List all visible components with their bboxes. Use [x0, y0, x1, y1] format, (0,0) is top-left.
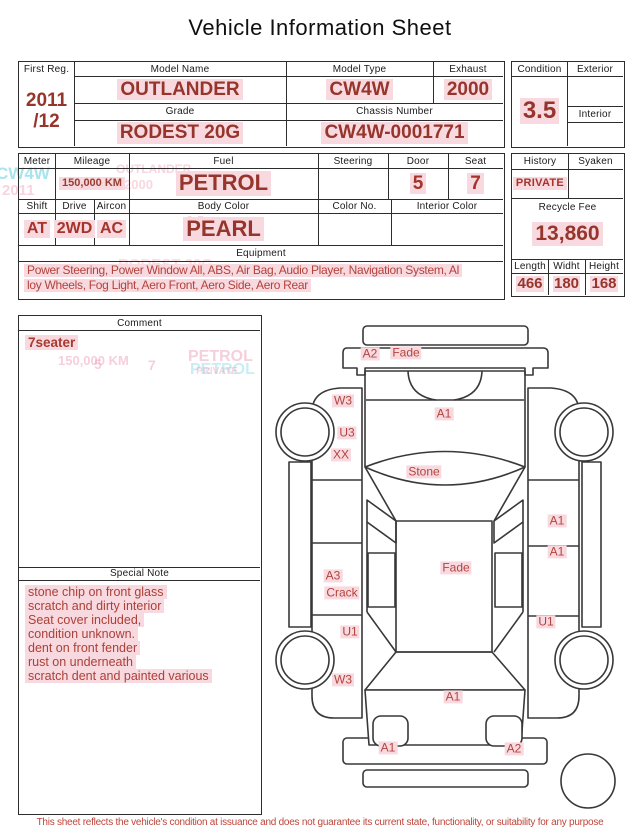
divider-line	[567, 122, 623, 123]
model-type-label: Model Type	[286, 62, 433, 76]
header-table: First Reg. 2011 /12 Model Name OUTLANDER…	[18, 61, 505, 148]
seat-label: Seat	[448, 154, 503, 168]
drive-value: 2WD	[54, 220, 96, 238]
damage-label: A1	[444, 690, 463, 703]
special-note-line: dent on front fender	[25, 641, 140, 655]
special-note-line: stone chip on front glass	[25, 585, 167, 599]
history-value: PRIVATE	[513, 177, 567, 189]
meter-label: Meter	[19, 154, 55, 168]
damage-label: Crack	[324, 586, 359, 599]
special-note-line: scratch and dirty interior	[25, 599, 164, 613]
chassis-value: CW4W-0001771	[321, 122, 467, 143]
mileage-value: 150,000 KM	[59, 177, 125, 189]
damage-label: A1	[548, 545, 567, 558]
car-damage-diagram: A2 Fade W3 A1 U3 XX Stone A1 A1 A3 Crack…	[265, 315, 640, 820]
divider-line	[19, 261, 503, 262]
special-note-line: Seat cover included,	[25, 613, 144, 627]
first-reg-month: /12	[33, 111, 59, 132]
special-note-text: stone chip on front glass scratch and di…	[25, 585, 255, 683]
first-reg-label: First Reg.	[19, 62, 74, 76]
left-rocker-panel	[289, 462, 311, 627]
door-label: Door	[388, 154, 448, 168]
footer-disclaimer: This sheet reflects the vehicle's condit…	[0, 817, 640, 828]
front-left-wheel	[276, 403, 334, 461]
a-pillars	[365, 467, 525, 521]
rear-window	[365, 652, 525, 690]
damage-label: U1	[536, 615, 555, 628]
door-value: 5	[410, 173, 427, 194]
damage-label: Fade	[390, 346, 421, 359]
aircon-label: Aircon	[94, 199, 129, 213]
comment-label: Comment	[19, 316, 260, 330]
damage-label: A2	[361, 347, 380, 360]
damage-label: Fade	[440, 561, 471, 574]
fuel-label: Fuel	[129, 154, 318, 168]
equipment-label: Equipment	[19, 245, 503, 261]
body-color-label: Body Color	[129, 199, 318, 213]
length-value: 466	[516, 276, 543, 293]
damage-label: A1	[548, 514, 567, 527]
divider-line	[19, 580, 260, 581]
height-value: 168	[590, 276, 617, 293]
first-reg-year: 2011	[26, 90, 67, 111]
damage-label: A1	[379, 741, 398, 754]
rear-lip-bar	[363, 770, 528, 787]
right-rocker-panel	[582, 462, 601, 627]
steering-label: Steering	[318, 154, 388, 168]
shift-label: Shift	[19, 199, 55, 213]
damage-label: Stone	[406, 465, 441, 478]
model-name-label: Model Name	[74, 62, 286, 76]
grade-value: RODEST 20G	[117, 122, 243, 143]
color-no-label: Color No.	[318, 199, 391, 213]
recycle-fee-label: Recycle Fee	[512, 200, 623, 214]
damage-label: A1	[435, 407, 454, 420]
width-value: 180	[553, 276, 580, 293]
comment-box: Comment 7seater Special Note stone chip …	[18, 315, 262, 815]
windshield	[365, 452, 525, 486]
special-note-line: scratch dent and painted various	[25, 669, 212, 683]
damage-label: XX	[331, 448, 351, 461]
aircon-value: AC	[97, 220, 126, 238]
front-right-wheel	[555, 403, 613, 461]
interior-label: Interior	[567, 106, 623, 122]
damage-label: W3	[332, 673, 354, 686]
equipment-text: Power Steering, Power Window All, ABS, A…	[24, 263, 502, 293]
divider-line	[512, 198, 623, 199]
damage-label: U3	[337, 426, 356, 439]
exhaust-label: Exhaust	[433, 62, 503, 76]
special-note-line: condition unknown.	[25, 627, 138, 641]
c-pillars	[367, 612, 523, 652]
grade-label: Grade	[74, 103, 286, 120]
history-label: History	[512, 154, 568, 169]
condition-box: Condition 3.5 Exterior Interior	[511, 61, 625, 148]
vehicle-information-sheet: CW4W 2011 OUTLANDER 2000 3.5 RODEST 20G …	[0, 0, 640, 835]
drive-label: Drive	[55, 199, 94, 213]
equipment-line-2: loy Wheels, Fog Light, Aero Front, Aero …	[24, 279, 311, 292]
special-note-label: Special Note	[19, 567, 260, 580]
body-color-value: PEARL	[183, 217, 264, 242]
mileage-label: Mileage	[55, 154, 129, 168]
height-label: Height	[585, 259, 623, 273]
exhaust-value: 2000	[444, 79, 492, 100]
model-type-value: CW4W	[326, 79, 392, 100]
shift-value: AT	[24, 220, 50, 238]
divider-line	[567, 76, 623, 77]
interior-color-label: Interior Color	[391, 199, 503, 213]
recycle-fee-value: 13,860	[532, 222, 602, 246]
spare-tire	[561, 754, 615, 808]
history-box: History Syaken PRIVATE Recycle Fee 13,86…	[511, 153, 625, 297]
width-label: Widht	[548, 259, 585, 273]
page-title: Vehicle Information Sheet	[0, 14, 640, 42]
length-label: Length	[512, 259, 548, 273]
fuel-value: PETROL	[176, 171, 271, 196]
damage-label: A2	[505, 742, 524, 755]
rear-right-wheel	[555, 631, 613, 689]
damage-label: W3	[332, 394, 354, 407]
damage-label: U1	[340, 625, 359, 638]
special-note-line: rust on underneath	[25, 655, 136, 669]
condition-score: 3.5	[520, 98, 559, 125]
equipment-line-1: Power Steering, Power Window All, ABS, A…	[24, 264, 462, 277]
exterior-label: Exterior	[567, 62, 623, 76]
seat-value: 7	[467, 173, 484, 194]
hood-arcs	[408, 371, 482, 400]
spec-table: Meter Mileage Fuel Steering Door Seat 15…	[18, 153, 505, 300]
model-name-value: OUTLANDER	[117, 79, 242, 100]
chassis-label: Chassis Number	[286, 103, 503, 120]
front-grille-bar	[363, 326, 528, 345]
divider-line	[19, 330, 260, 331]
rear-left-wheel	[276, 631, 334, 689]
damage-label: A3	[324, 569, 343, 582]
roof-panel	[396, 521, 492, 652]
comment-value: 7seater	[25, 335, 78, 350]
syaken-label: Syaken	[568, 154, 623, 169]
condition-label: Condition	[512, 62, 567, 76]
